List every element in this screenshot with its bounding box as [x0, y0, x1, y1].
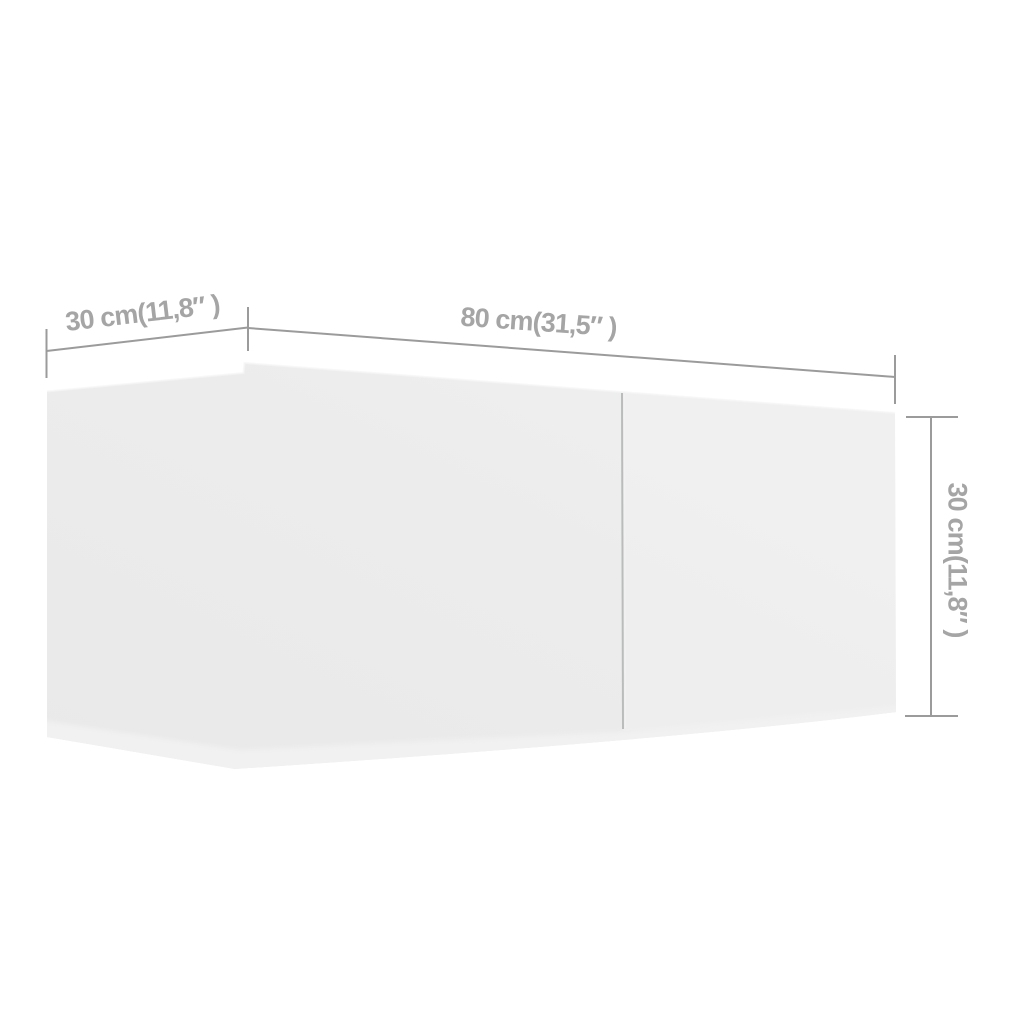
svg-text:30 cm(11,8″ ): 30 cm(11,8″ )	[943, 483, 973, 638]
